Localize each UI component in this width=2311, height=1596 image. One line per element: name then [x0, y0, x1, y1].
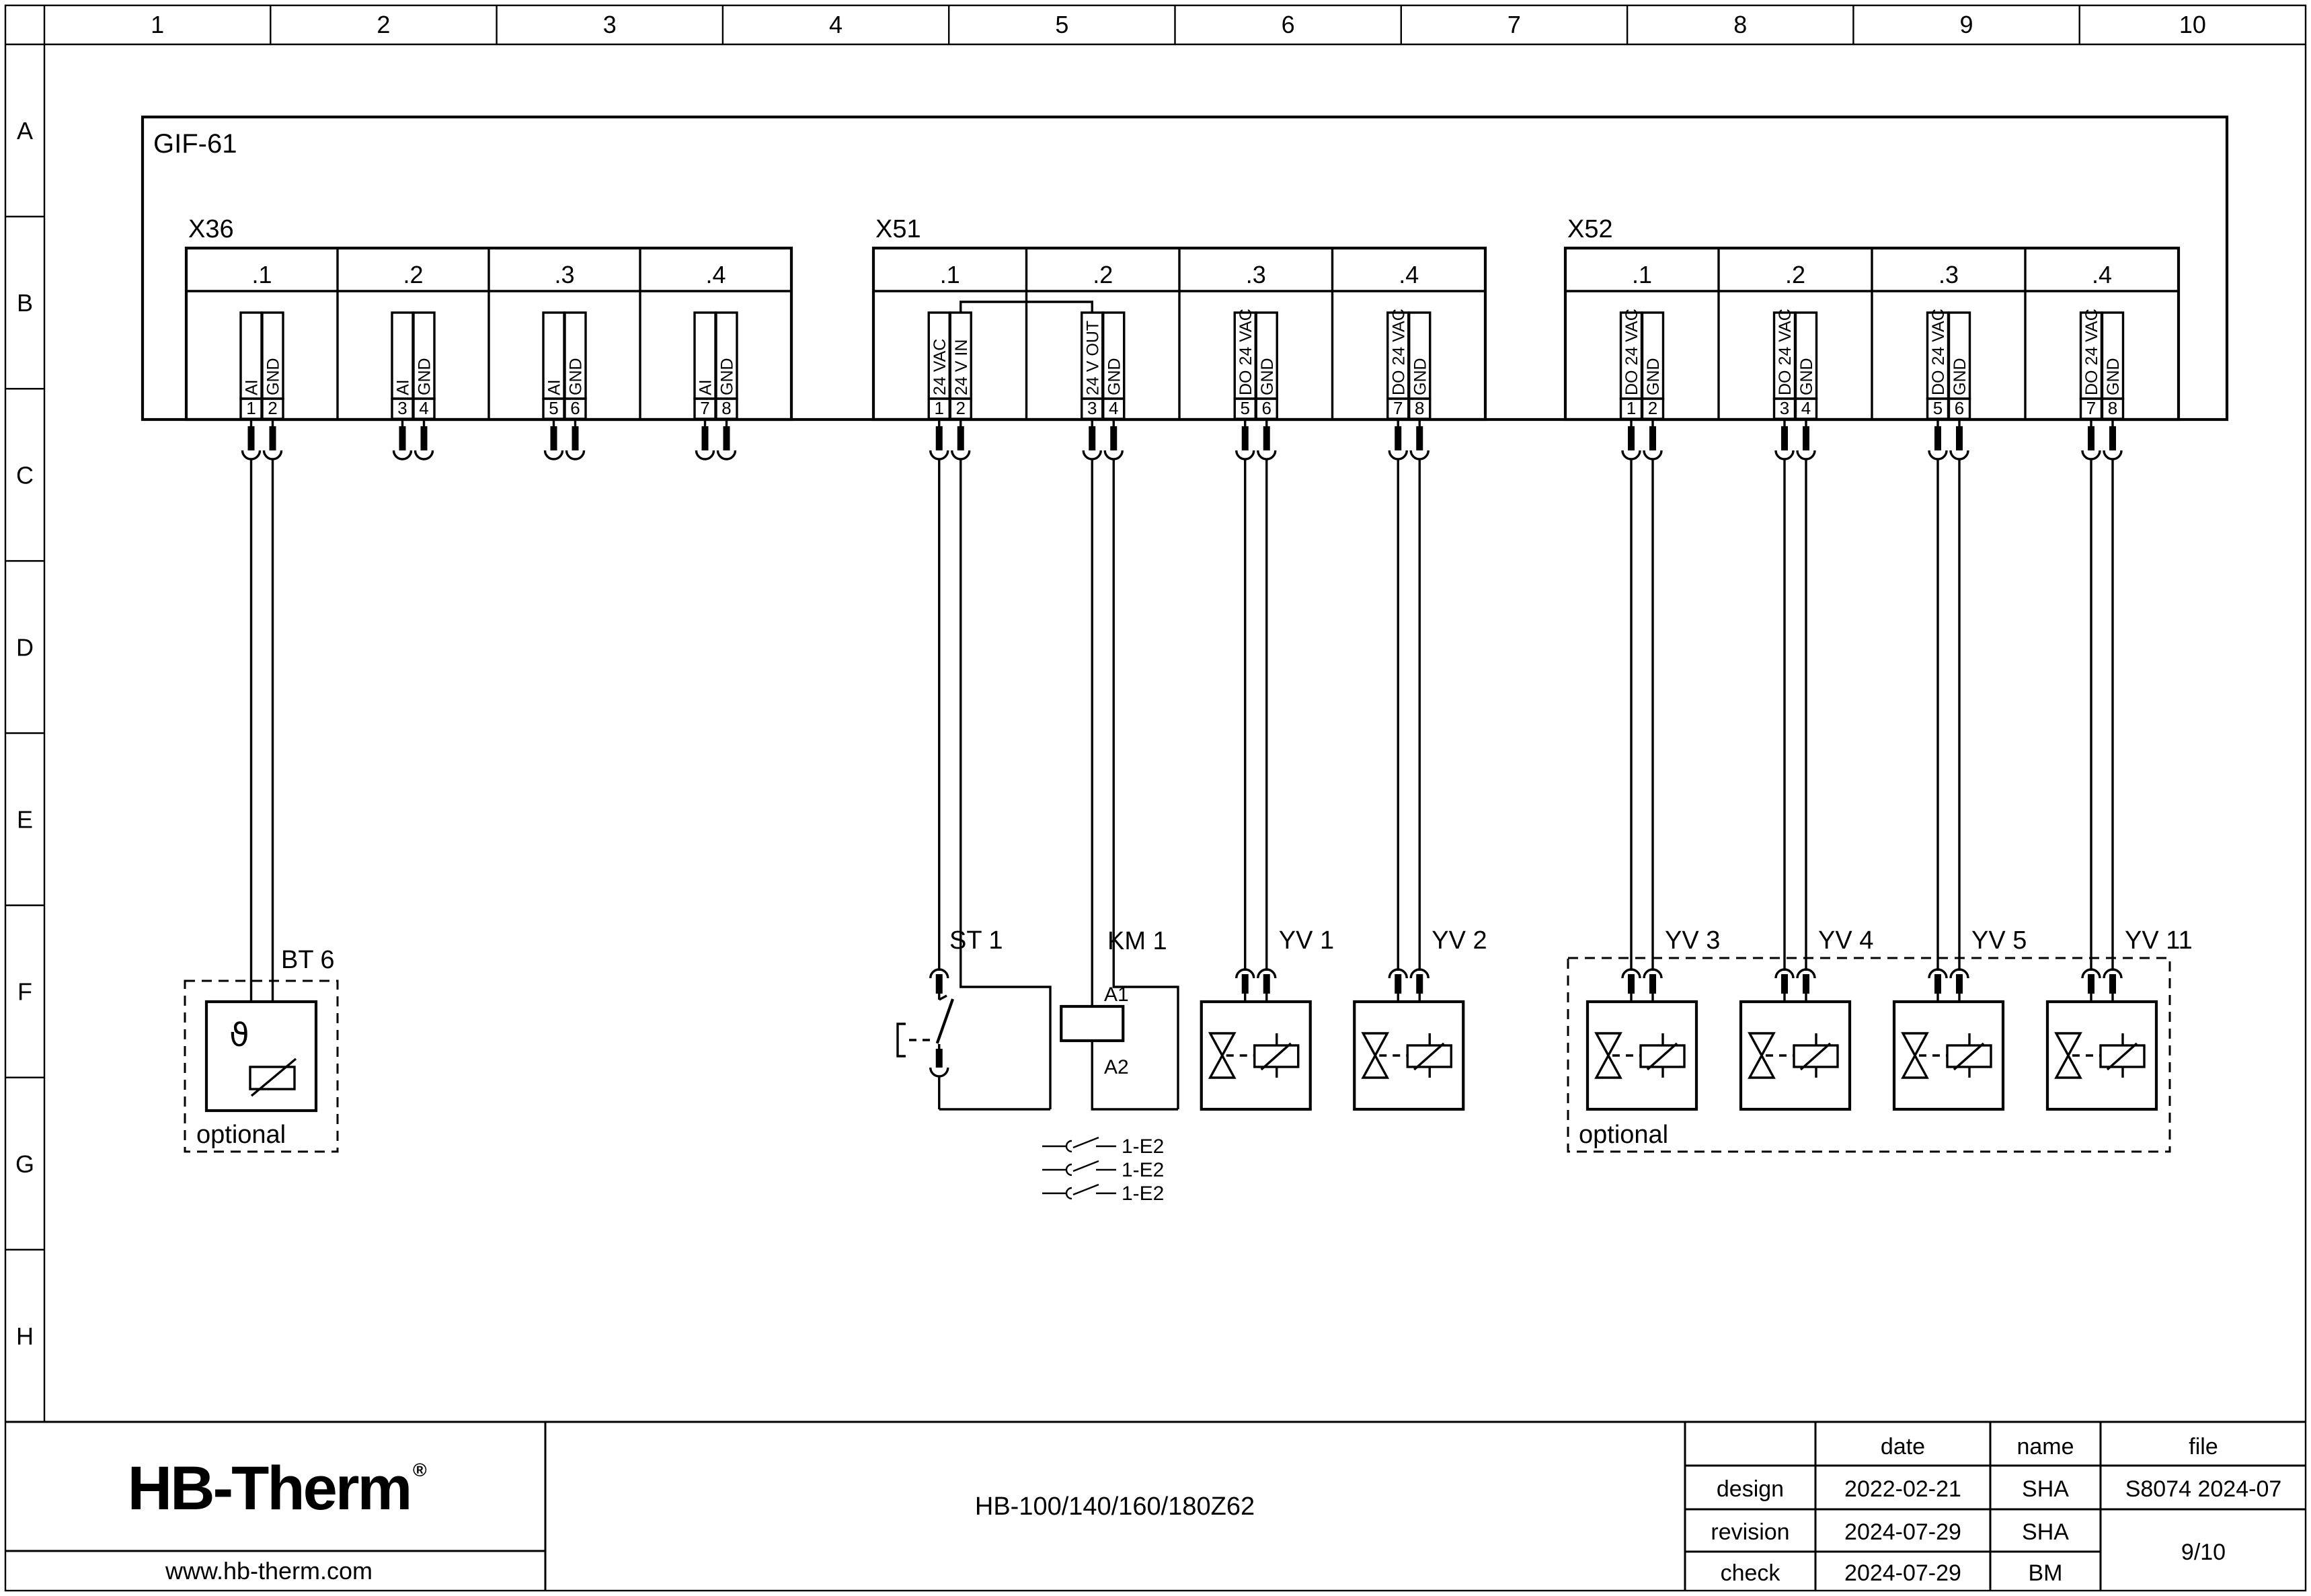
st1-pin-icon	[936, 974, 943, 994]
pin-number: 2	[268, 398, 277, 418]
section-label: .2	[403, 261, 423, 288]
pin-number: 7	[2086, 398, 2096, 418]
plug-pin-icon	[572, 426, 579, 450]
pin-number: 5	[549, 398, 558, 418]
pin-number: 5	[1241, 398, 1250, 418]
device-pin-icon	[1263, 974, 1270, 994]
valve-label: YV 3	[1665, 926, 1720, 955]
plug-pin-icon	[1089, 426, 1095, 450]
pin-number: 7	[700, 398, 709, 418]
pin-number: 2	[1648, 398, 1657, 418]
pin-number: 8	[1415, 398, 1424, 418]
tb-design-label: design	[1717, 1476, 1784, 1502]
valve-triangle-top-icon	[1903, 1033, 1927, 1055]
pin-label: GND	[1258, 358, 1277, 395]
plug-pin-icon	[1934, 426, 1941, 450]
tb-design-name: SHA	[2022, 1476, 2069, 1502]
ruler-row-letter: G	[15, 1150, 34, 1178]
bt6-label: BT 6	[281, 946, 335, 974]
drawing-frame	[5, 5, 2306, 1591]
valve-label: YV 11	[2125, 926, 2193, 955]
pin-number: 7	[1393, 398, 1403, 418]
pin-number: 6	[1955, 398, 1964, 418]
pin-number: 1	[1627, 398, 1636, 418]
km1-coil	[1061, 1006, 1123, 1041]
bt6-theta-symbol: ϑ	[229, 1016, 249, 1054]
plug-socket-icon	[394, 450, 412, 459]
device-st1: ST 1	[898, 926, 1003, 1109]
pin-label: GND	[2104, 358, 2123, 395]
pin-label: DO 24 VAC	[1389, 309, 1408, 395]
contact-hook-icon	[1066, 1164, 1072, 1175]
contact-blade	[1073, 1138, 1099, 1148]
plug-pin-icon	[2088, 426, 2094, 450]
st1-contact-blade	[937, 999, 953, 1043]
plug-pin-icon	[551, 426, 557, 450]
connector-1: X51.1.2.3.424 VAC124 V IN224 V OUT3GND4D…	[873, 215, 1485, 459]
contact-hook-icon	[1066, 1141, 1072, 1152]
device-pin-icon	[1781, 974, 1788, 994]
st1-pin2-icon	[936, 1049, 943, 1068]
gif61-module: GIF-61	[143, 117, 2227, 420]
pin-number: 6	[1262, 398, 1271, 418]
bt6-thermistor-slash	[251, 1059, 296, 1096]
valves-optional-label: optional	[1579, 1121, 1668, 1149]
section-label: .4	[705, 261, 726, 288]
plug-pin-icon	[1242, 426, 1249, 450]
schematic-page: 12345678910ABCDEFGH GIF-61 X36.1.2.3.4AI…	[0, 0, 2311, 1596]
tb-header-name: name	[2016, 1434, 2074, 1460]
plug-pin-icon	[702, 426, 709, 450]
plug-pin-icon	[1803, 426, 1809, 450]
plug-socket-icon	[1622, 450, 1640, 459]
valve-triangle-top-icon	[2056, 1033, 2080, 1055]
pin-number: 6	[570, 398, 580, 418]
plug-pin-icon	[1416, 426, 1423, 450]
tb-revision-date: 2024-07-29	[1844, 1519, 1961, 1545]
contact-ref-2: 1-E2	[1042, 1183, 1164, 1205]
pin-label: GND	[718, 358, 737, 395]
device-pin-icon	[2088, 974, 2094, 994]
pin-number: 5	[1933, 398, 1943, 418]
ruler-column-number: 4	[829, 11, 843, 38]
valve-box	[1894, 1002, 2003, 1109]
tb-header-file: file	[2189, 1434, 2218, 1460]
wire-km1	[1092, 459, 1178, 1109]
st1-label: ST 1	[949, 926, 1003, 955]
plug-socket-icon	[1105, 450, 1122, 459]
contact-blade	[1073, 1185, 1099, 1195]
section-label: .3	[1246, 261, 1266, 288]
pin-number: 1	[935, 398, 944, 418]
valve-triangle-bottom-icon	[1210, 1055, 1235, 1078]
plug-socket-icon	[1797, 450, 1815, 459]
pin-label: DO 24 VAC	[1776, 309, 1795, 395]
solenoid-slash	[1801, 1043, 1830, 1070]
device-pin-icon	[1649, 974, 1656, 994]
plug-pin-icon	[1628, 426, 1635, 450]
km1-label: KM 1	[1107, 927, 1167, 955]
pin-number: 4	[1109, 398, 1118, 418]
ruler-row-letter: E	[17, 806, 33, 834]
model-text: HB-100/140/160/180Z62	[975, 1492, 1255, 1521]
plug-socket-icon	[2082, 450, 2100, 459]
ruler-column-number: 9	[1960, 11, 1973, 38]
pin-label: AI	[697, 379, 715, 395]
plug-socket-icon	[1644, 450, 1661, 459]
plug-socket-icon	[931, 450, 948, 459]
tb-check-date: 2024-07-29	[1844, 1560, 1961, 1586]
plug-pin-icon	[1263, 426, 1270, 450]
plug-socket-icon	[567, 450, 584, 459]
pin-label: DO 24 VAC	[2082, 309, 2101, 395]
ruler-column-number: 8	[1733, 11, 1747, 38]
pin-label: GND	[1644, 358, 1663, 395]
ruler-row-letter: F	[17, 978, 32, 1006]
contact-blade	[1073, 1161, 1099, 1171]
plug-socket-icon	[1411, 450, 1428, 459]
plug-pin-icon	[399, 426, 406, 450]
plug-socket-icon	[243, 450, 260, 459]
ruler-band: 12345678910ABCDEFGH	[5, 5, 2206, 1350]
bt6-box	[206, 1002, 316, 1111]
valve-label: YV 1	[1279, 926, 1334, 955]
valve-triangle-bottom-icon	[1750, 1055, 1774, 1078]
plug-socket-icon	[264, 450, 282, 459]
plug-socket-icon	[952, 450, 970, 459]
tb-page-number: 9/10	[2181, 1540, 2226, 1565]
plug-pin-icon	[1956, 426, 1963, 450]
valve-box	[1202, 1002, 1310, 1109]
title-block: HB-Therm ® www.hb-therm.com HB-100/140/1…	[5, 1422, 2306, 1591]
plug-socket-icon	[718, 450, 736, 459]
st1-socket2-icon	[931, 1068, 948, 1076]
plug-socket-icon	[1929, 450, 1947, 459]
plug-socket-icon	[1951, 450, 1968, 459]
ruler-row-letter: C	[16, 461, 34, 489]
section-label: .4	[1399, 261, 1419, 288]
connector-2: X52.1.2.3.4DO 24 VAC1GND2DO 24 VAC3GND4D…	[1565, 215, 2179, 459]
bt6-optional-label: optional	[196, 1121, 286, 1149]
valve-triangle-top-icon	[1750, 1033, 1774, 1055]
device-pin-icon	[2109, 974, 2116, 994]
pin-label: AI	[394, 379, 413, 395]
contact-ref-0: 1-E2	[1042, 1135, 1164, 1158]
hb-therm-logo: HB-Therm	[128, 1454, 411, 1523]
plug-pin-icon	[1395, 426, 1401, 450]
plug-socket-icon	[1776, 450, 1793, 459]
pin-number: 4	[419, 398, 428, 418]
device-km1: KM 1 A1 A2	[1061, 927, 1167, 1078]
section-label: .3	[554, 261, 574, 288]
device-pin-icon	[1956, 974, 1963, 994]
valve-triangle-bottom-icon	[1903, 1055, 1927, 1078]
connector-blocks: X36.1.2.3.4AI1GND2AI3GND4AI5GND6AI7GND8X…	[186, 215, 2179, 459]
connector-title: X52	[1567, 215, 1613, 243]
plug-pin-icon	[248, 426, 255, 450]
logo-registered-mark: ®	[413, 1460, 427, 1480]
solenoid-slash	[1261, 1043, 1291, 1070]
plug-socket-icon	[2104, 450, 2121, 459]
pin-label: GND	[1797, 358, 1816, 395]
pin-label: GND	[1105, 358, 1124, 395]
wire-yv3-11	[1631, 459, 2113, 971]
device-bt6: ϑ BT 6 optional	[185, 946, 338, 1152]
device-pin-icon	[1934, 974, 1941, 994]
ruler-row-letter: H	[16, 1322, 34, 1350]
wire-st1-return	[939, 459, 1050, 1109]
device-pin-icon	[1628, 974, 1635, 994]
tb-design-date: 2022-02-21	[1844, 1476, 1961, 1502]
plug-pin-icon	[936, 426, 943, 450]
pin-label: GND	[416, 358, 434, 395]
connector-0: X36.1.2.3.4AI1GND2AI3GND4AI5GND6AI7GND8	[186, 215, 791, 459]
valve-devices: YV 1YV 2YV 3YV 4YV 5YV 11	[1202, 926, 2193, 1109]
pin-number: 3	[397, 398, 407, 418]
pin-label: GND	[264, 358, 283, 395]
tb-check-label: check	[1721, 1560, 1781, 1586]
plug-pin-icon	[1649, 426, 1656, 450]
plug-socket-icon	[1237, 450, 1254, 459]
pin-label: GND	[1951, 358, 1969, 395]
pin-number: 4	[1801, 398, 1811, 418]
plug-socket-icon	[1389, 450, 1407, 459]
pin-number: 8	[721, 398, 731, 418]
device-pin-icon	[1803, 974, 1809, 994]
ruler-column-number: 1	[151, 11, 164, 38]
pin-label: 24 VAC	[931, 339, 949, 395]
km1-a2-label: A2	[1104, 1056, 1129, 1078]
device-pin-icon	[1242, 974, 1249, 994]
valve-triangle-bottom-icon	[2056, 1055, 2080, 1078]
plug-pin-icon	[2109, 426, 2116, 450]
plug-socket-icon	[697, 450, 714, 459]
pin-label: DO 24 VAC	[1237, 309, 1255, 395]
plug-pin-icon	[1781, 426, 1788, 450]
plug-pin-icon	[723, 426, 730, 450]
pin-number: 3	[1780, 398, 1789, 418]
pin-label: 24 V OUT	[1083, 321, 1102, 395]
tb-check-name: BM	[2029, 1560, 2063, 1586]
st1-thermal-actuator-icon	[898, 1024, 906, 1056]
section-label: .1	[940, 261, 960, 288]
section-label: .3	[1938, 261, 1959, 288]
ruler-column-number: 7	[1507, 11, 1521, 38]
pin-number: 1	[246, 398, 256, 418]
pin-label: DO 24 VAC	[1929, 309, 1948, 395]
valve-label: YV 4	[1818, 926, 1873, 955]
solenoid-slash	[1954, 1043, 1984, 1070]
wiring-diagram: 12345678910ABCDEFGH GIF-61 X36.1.2.3.4AI…	[0, 0, 2311, 1596]
plug-socket-icon	[1258, 450, 1276, 459]
valve-label: YV 5	[1971, 926, 2027, 955]
solenoid-slash	[1647, 1043, 1677, 1070]
km1-a1-label: A1	[1104, 984, 1129, 1006]
contact-ref-label: 1-E2	[1122, 1183, 1164, 1205]
pin-label: 24 V IN	[952, 340, 971, 395]
plug-pin-icon	[270, 426, 276, 450]
section-label: .2	[1785, 261, 1805, 288]
contact-hook-icon	[1066, 1188, 1072, 1199]
device-pin-icon	[1416, 974, 1423, 994]
tb-revision-label: revision	[1711, 1519, 1789, 1545]
pin-label: AI	[545, 379, 564, 395]
section-label: .4	[2092, 261, 2112, 288]
section-label: .1	[251, 261, 272, 288]
plug-socket-icon	[1083, 450, 1101, 459]
ruler-column-number: 2	[377, 11, 390, 38]
ruler-column-number: 5	[1055, 11, 1068, 38]
wire-bt6	[251, 459, 273, 1002]
plug-pin-icon	[1110, 426, 1117, 450]
valve-triangle-top-icon	[1210, 1033, 1235, 1055]
pin-label: GND	[567, 358, 586, 395]
ruler-column-number: 3	[603, 11, 617, 38]
tb-revision-name: SHA	[2022, 1519, 2069, 1545]
pin-label: AI	[243, 379, 262, 395]
section-label: .2	[1093, 261, 1113, 288]
plug-pin-icon	[957, 426, 964, 450]
solenoid-slash	[1414, 1043, 1444, 1070]
contact-ref-label: 1-E2	[1122, 1159, 1164, 1181]
valve-box	[1588, 1002, 1696, 1109]
website-text: www.hb-therm.com	[165, 1557, 373, 1585]
valve-box	[1354, 1002, 1463, 1109]
section-label: .1	[1632, 261, 1652, 288]
pin-number: 3	[1087, 398, 1097, 418]
valve-box	[2047, 1002, 2156, 1109]
pin-number: 2	[956, 398, 966, 418]
tb-header-date: date	[1881, 1434, 1925, 1460]
valve-triangle-top-icon	[1596, 1033, 1620, 1055]
valve-triangle-bottom-icon	[1363, 1055, 1387, 1078]
connector-title: X36	[188, 215, 234, 243]
valve-triangle-top-icon	[1363, 1033, 1387, 1055]
ruler-column-number: 10	[2179, 11, 2206, 38]
solenoid-slash	[2107, 1043, 2137, 1070]
outer-border	[5, 5, 2306, 1591]
contact-references: 1-E21-E21-E2	[1042, 1135, 1164, 1205]
pin-label: GND	[1411, 358, 1429, 395]
ruler-row-letter: A	[17, 117, 33, 145]
ruler-row-letter: B	[17, 289, 33, 317]
pin-label: DO 24 VAC	[1622, 309, 1641, 395]
wire-yv1-yv2	[1245, 459, 1420, 971]
gif61-box	[143, 117, 2227, 420]
ruler-row-letter: D	[16, 633, 34, 661]
device-pin-icon	[1395, 974, 1401, 994]
valve-label: YV 2	[1432, 926, 1487, 955]
pin-number: 8	[2108, 398, 2117, 418]
plug-socket-icon	[416, 450, 433, 459]
contact-ref-label: 1-E2	[1122, 1135, 1164, 1158]
tb-file-value: S8074 2024-07	[2125, 1476, 2282, 1502]
plug-socket-icon	[545, 450, 563, 459]
valve-triangle-bottom-icon	[1596, 1055, 1620, 1078]
connector-title: X51	[875, 215, 921, 243]
wires	[251, 459, 2113, 1109]
contact-ref-1: 1-E2	[1042, 1159, 1164, 1181]
plug-pin-icon	[421, 426, 428, 450]
valve-box	[1741, 1002, 1850, 1109]
ruler-column-number: 6	[1282, 11, 1295, 38]
gif61-label: GIF-61	[153, 129, 237, 159]
